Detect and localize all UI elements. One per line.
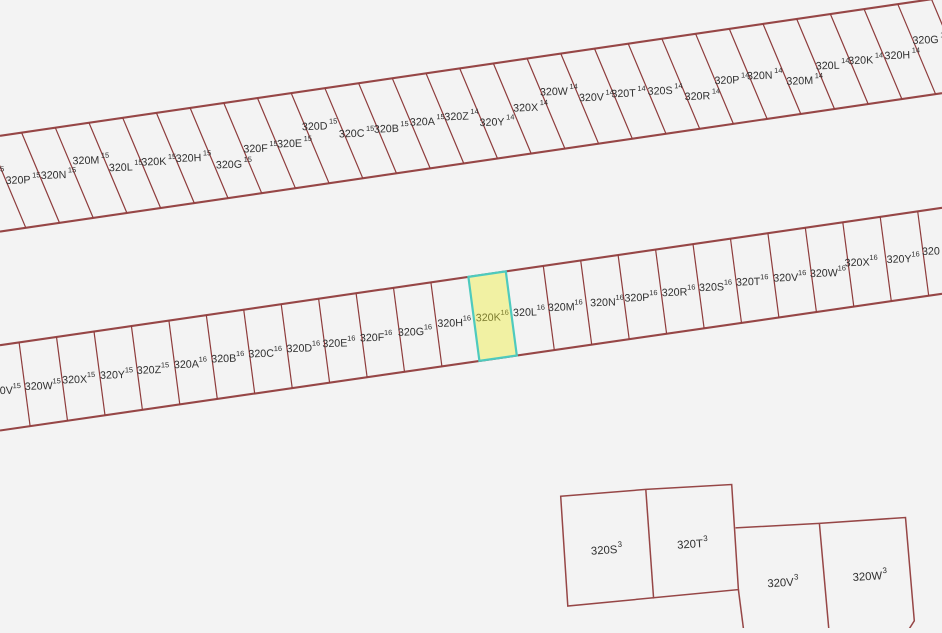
svg-text:320: 320 bbox=[922, 245, 940, 258]
svg-text:15: 15 bbox=[0, 164, 4, 173]
